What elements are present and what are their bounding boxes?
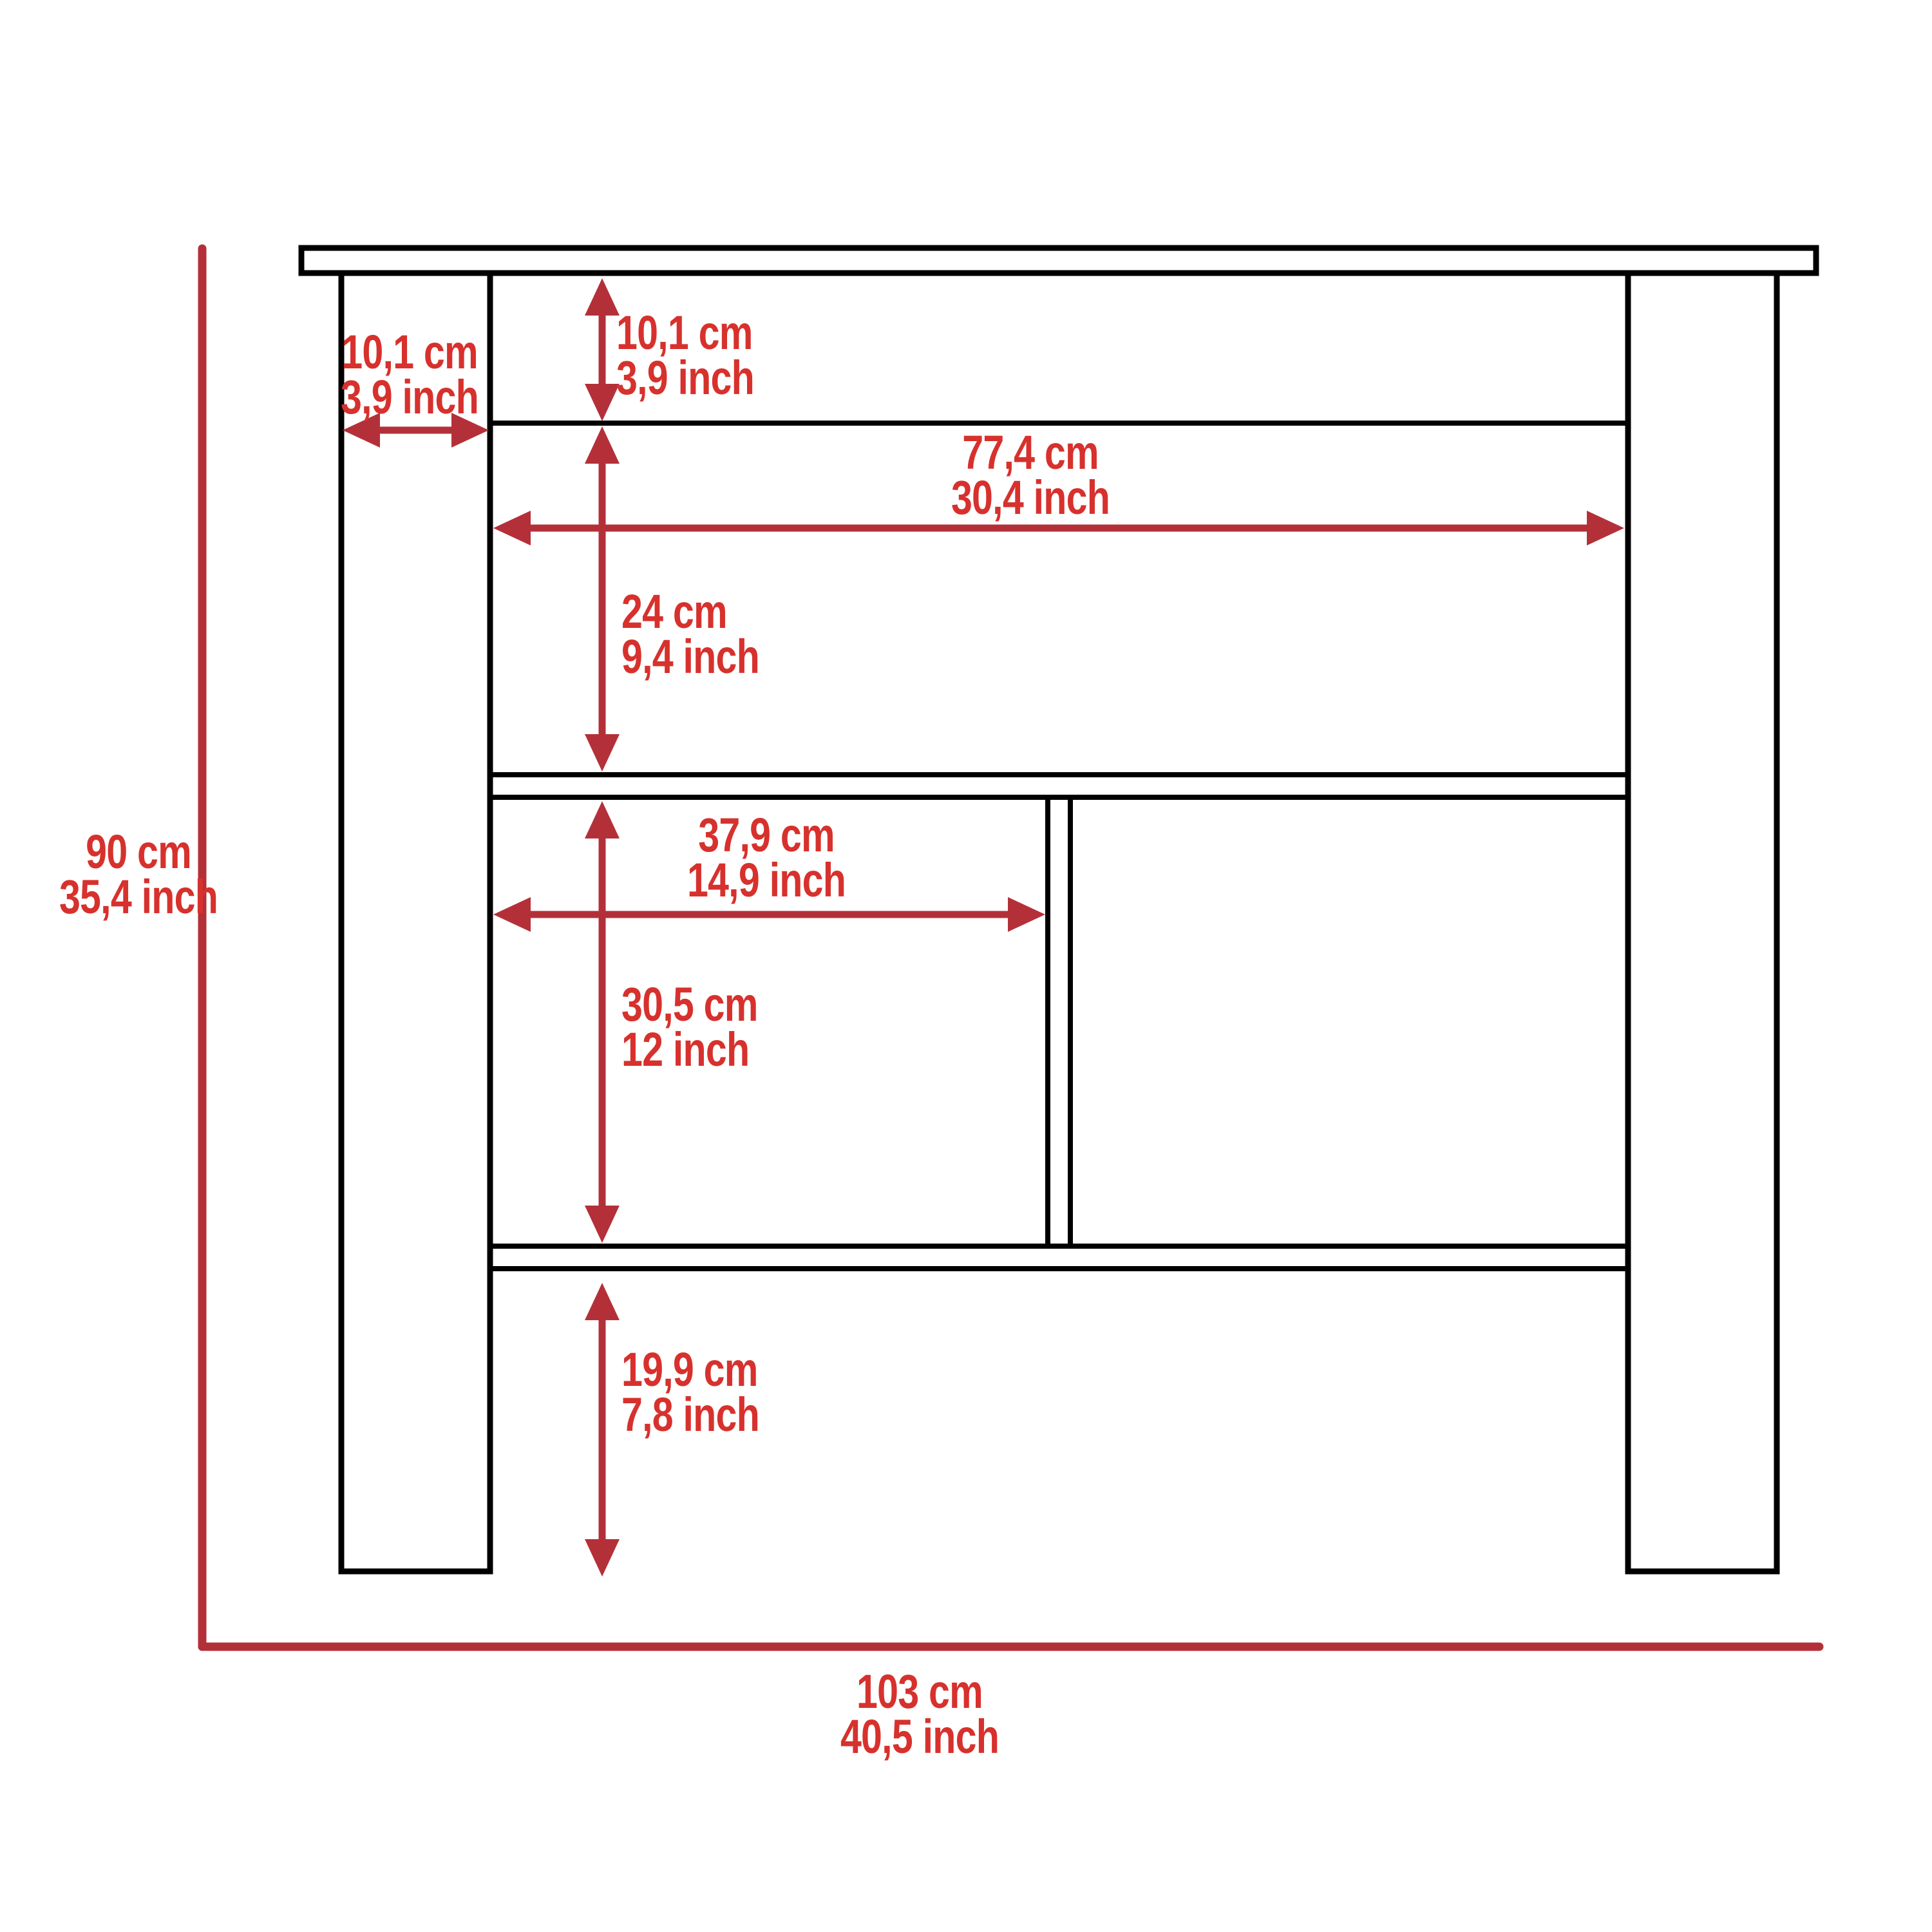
dimension-diagram: 90 cm 35,4 inch 103 cm 40,5 inch 10,1 cm…	[0, 0, 1932, 1932]
top-shelf-height-dimension: 10,1 cm 3,9 inch	[585, 278, 754, 421]
upper-opening-width-arrowhead-left	[493, 511, 531, 545]
left-compartment-width-dimension: 37,9 cm 14,9 inch	[493, 809, 1045, 932]
upper-opening-height-arrowhead-bottom	[585, 734, 620, 772]
upper-opening-height-arrowhead-top	[585, 426, 620, 464]
bottom-clearance-arrowhead-bottom	[585, 1539, 620, 1577]
overall-dimension-frame: 90 cm 35,4 inch 103 cm 40,5 inch	[59, 249, 1819, 1764]
right-leg	[1628, 273, 1777, 1571]
tabletop	[301, 248, 1816, 273]
left-leg	[341, 273, 490, 1571]
leg-width-label-inch: 3,9 inch	[341, 371, 478, 424]
bottom-clearance-dimension: 19,9 cm 7,8 inch	[585, 1283, 759, 1577]
upper-opening-width-arrowhead-right	[1587, 511, 1624, 545]
top-shelf-height-arrowhead-bottom	[585, 384, 620, 421]
left-compartment-width-arrowhead-right	[1008, 897, 1045, 932]
upper-opening-width-label-inch: 30,4 inch	[951, 471, 1110, 525]
left-compartment-width-arrowhead-left	[493, 897, 531, 932]
upper-opening-width-dimension: 77,4 cm 30,4 inch	[493, 426, 1624, 545]
bottom-clearance-arrowhead-top	[585, 1283, 620, 1320]
compartment-height-label-inch: 12 inch	[621, 1023, 749, 1077]
overall-height-label-inch: 35,4 inch	[59, 871, 218, 924]
bottom-clearance-label-inch: 7,8 inch	[621, 1388, 759, 1442]
upper-opening-height-dimension: 24 cm 9,4 inch	[585, 426, 759, 772]
overall-width-label-inch: 40,5 inch	[840, 1710, 999, 1764]
left-compartment-width-label-inch: 14,9 inch	[687, 854, 846, 907]
compartment-height-arrowhead-top	[585, 801, 620, 838]
dimension-diagram-page: 90 cm 35,4 inch 103 cm 40,5 inch 10,1 cm…	[0, 0, 1932, 1932]
top-shelf-height-label-inch: 3,9 inch	[616, 352, 754, 405]
top-shelf-height-arrowhead-top	[585, 278, 620, 316]
leg-width-dimension: 10,1 cm 3,9 inch	[341, 326, 489, 448]
upper-opening-height-label-inch: 9,4 inch	[621, 630, 759, 684]
compartment-height-arrowhead-bottom	[585, 1206, 620, 1243]
